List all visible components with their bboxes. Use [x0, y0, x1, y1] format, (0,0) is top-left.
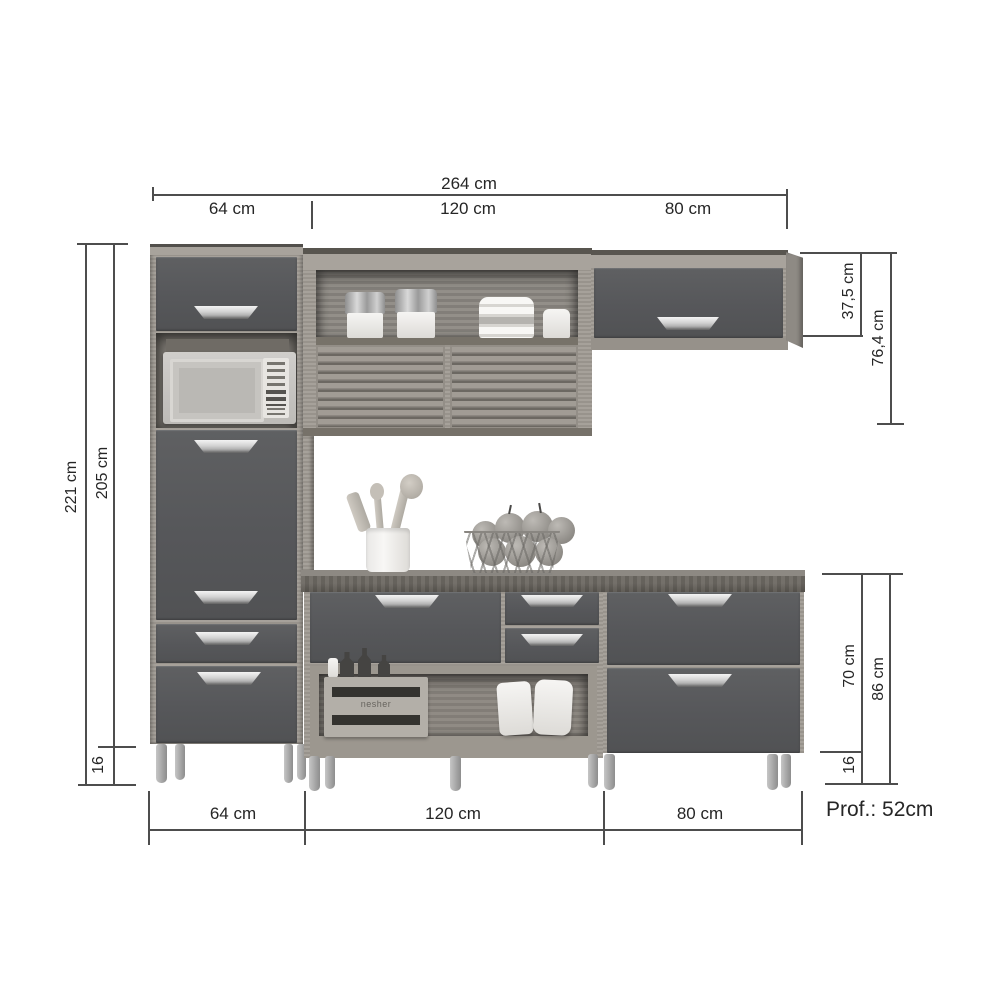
utensil-holder [366, 528, 410, 572]
utensil-ladle-head [400, 474, 423, 499]
counter-items [0, 0, 1000, 1000]
utensil-spoon-head [370, 483, 384, 500]
fruit-stem [538, 503, 542, 513]
utensil-spatula [346, 491, 372, 533]
wire-fruit-basket [462, 531, 562, 575]
kitchen-cabinet-dimension-diagram: 264 cm 64 cm 120 cm 80 cm 221 cm 205 cm … [0, 0, 1000, 1000]
